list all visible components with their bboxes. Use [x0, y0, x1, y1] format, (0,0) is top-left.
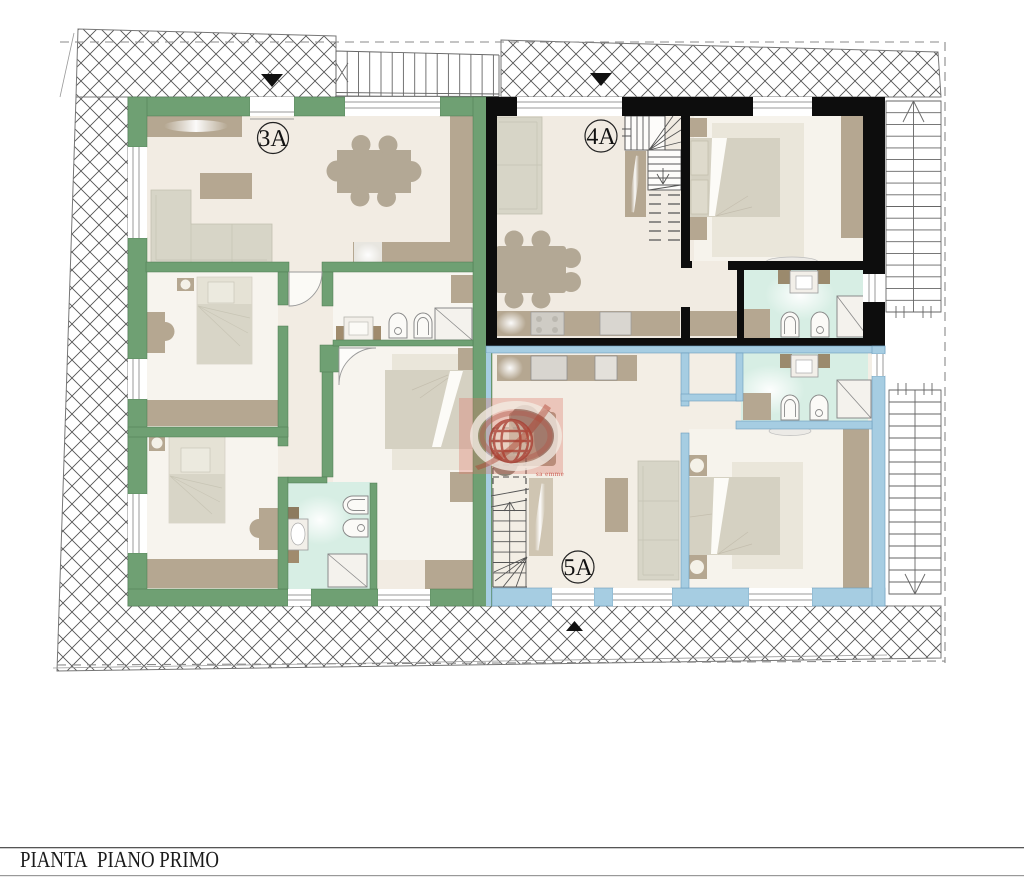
- svg-text:sa emme: sa emme: [536, 470, 564, 478]
- svg-text:3A: 3A: [258, 126, 288, 152]
- svg-text:PIANTA PIANO PRIMO: PIANTA PIANO PRIMO: [20, 847, 219, 872]
- svg-text:4A: 4A: [586, 124, 616, 150]
- svg-text:5A: 5A: [563, 555, 593, 581]
